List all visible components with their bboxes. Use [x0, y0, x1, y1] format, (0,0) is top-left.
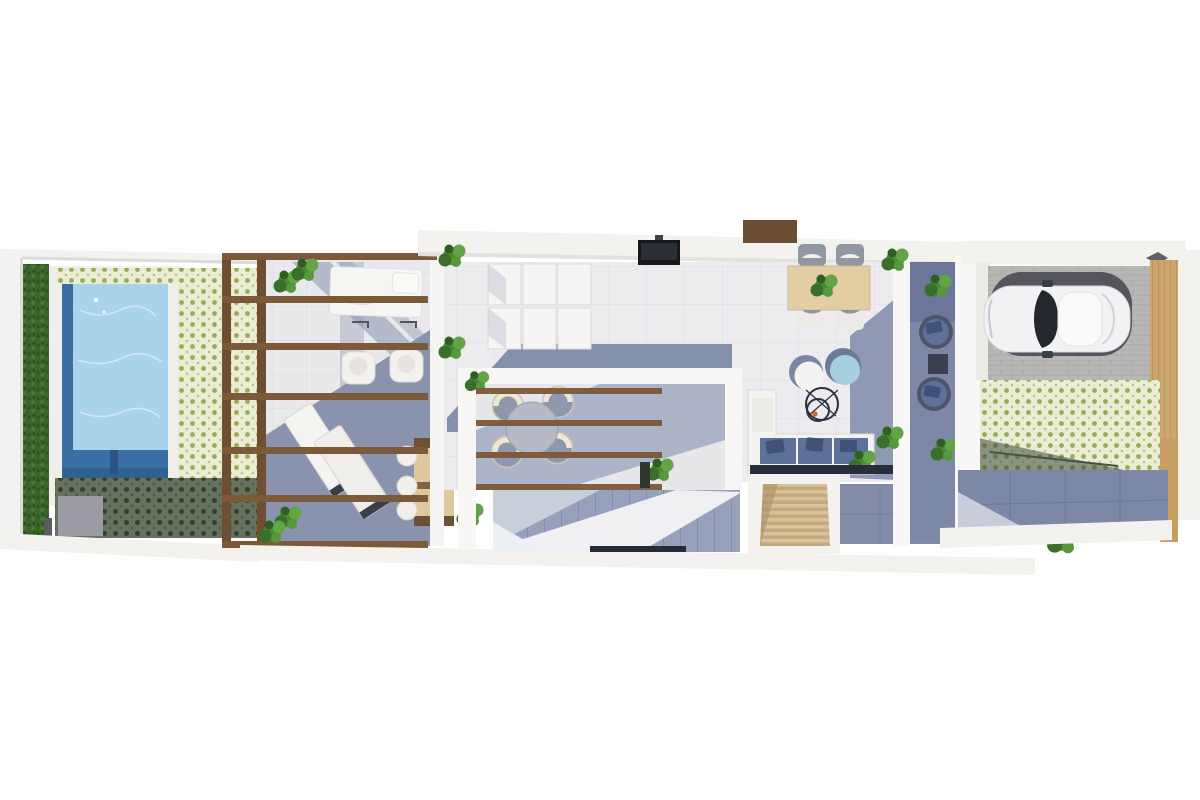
rattan-chair — [917, 377, 951, 411]
pergola-beam — [222, 296, 428, 303]
entry-canopy — [743, 220, 797, 243]
decor-accent — [812, 411, 817, 416]
patio-side-table — [928, 354, 948, 374]
water-sparkle — [94, 298, 98, 302]
pool-ladder — [110, 450, 118, 474]
hedge — [23, 264, 49, 542]
floorplan-canvas — [0, 0, 1200, 800]
boundary-wall-edge — [20, 258, 23, 546]
staircase — [493, 490, 742, 552]
outdoor-dining-chairs — [397, 446, 417, 520]
pergola-beam — [222, 495, 428, 502]
boundary-wall-left — [0, 255, 22, 547]
rear-garden — [940, 380, 1172, 548]
armchair — [390, 350, 423, 382]
pillow — [805, 437, 823, 452]
courtyard-slat — [476, 420, 662, 426]
pergola-beam — [222, 393, 428, 400]
pergola-beam — [222, 253, 437, 260]
courtyard-wall-right — [725, 368, 742, 490]
floorplan-stage — [0, 0, 1200, 800]
mirror — [1042, 280, 1053, 287]
car-roof — [1058, 292, 1102, 346]
daybed — [329, 266, 423, 317]
chaise-cushion — [752, 398, 773, 432]
outdoor-shower-post — [44, 518, 52, 538]
courtyard-slat — [476, 388, 662, 394]
swimming-pool — [62, 284, 168, 480]
planter-box — [640, 462, 650, 488]
armchair — [342, 352, 375, 384]
car — [984, 280, 1130, 358]
stair-nosing-shadow — [590, 546, 686, 552]
courtyard-wall-top — [458, 368, 742, 384]
boundary-wall-right — [1178, 250, 1200, 520]
patio-wall-left — [893, 256, 910, 546]
pillow — [765, 439, 785, 454]
courtyard-slat — [476, 484, 662, 490]
water-sparkle — [102, 310, 105, 313]
pergola-beam — [222, 343, 428, 350]
round-table — [506, 402, 558, 454]
mirror — [1042, 351, 1053, 358]
pillow — [840, 440, 857, 452]
rattan-chair — [919, 315, 953, 349]
courtyard-wall-left — [458, 368, 476, 548]
pergola-beam — [222, 447, 428, 454]
concrete-pad — [58, 496, 103, 536]
house-left-wall — [430, 262, 444, 546]
courtyard-slat — [476, 452, 662, 458]
